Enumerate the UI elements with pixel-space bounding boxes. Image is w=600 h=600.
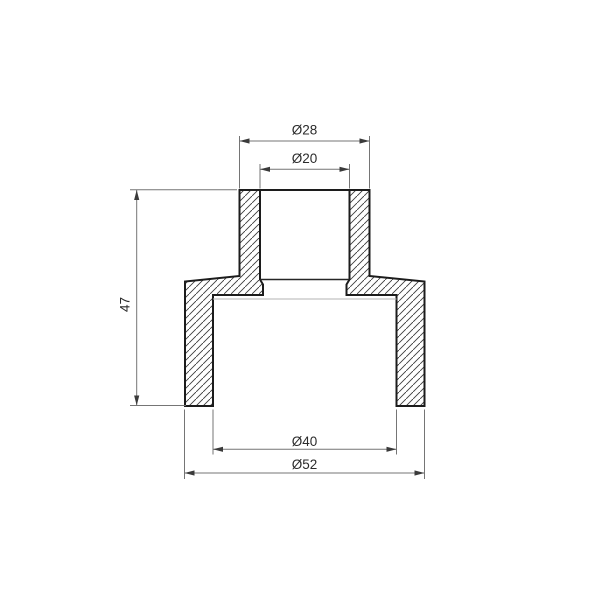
arrowhead-icon [134,190,139,200]
drawing-canvas: Ø28 Ø20 47 Ø40 [0,0,600,600]
arrowhead-icon [185,470,195,475]
dim-label-top-outer: Ø28 [292,123,318,138]
arrowhead-icon [240,138,250,143]
dim-label-top-inner: Ø20 [292,151,318,166]
technical-drawing: Ø28 Ø20 47 Ø40 [0,0,600,600]
arrowhead-icon [134,396,139,406]
arrowhead-icon [340,167,350,172]
part-left-wall [185,190,263,406]
arrowhead-icon [415,470,425,475]
dim-label-bottom-inner: Ø40 [292,434,318,449]
arrowhead-icon [213,447,223,452]
arrowhead-icon [360,138,370,143]
arrowhead-icon [387,447,397,452]
part-section [185,190,425,406]
dim-top-inner-diameter: Ø20 [260,151,350,189]
dim-label-height: 47 [118,297,133,312]
part-right-wall [347,190,425,406]
dim-height: 47 [118,190,238,406]
dim-label-bottom-outer: Ø52 [292,457,318,472]
arrowhead-icon [260,167,270,172]
dim-bottom-inner-diameter: Ø40 [213,410,397,455]
